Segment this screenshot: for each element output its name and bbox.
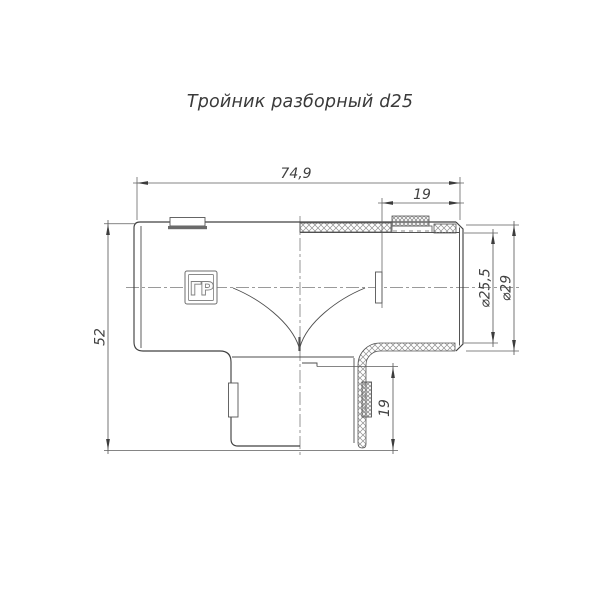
tee-body [134,222,463,446]
arrow-botsocket-bottom [391,439,395,450]
arrow-topsocket-right [449,201,460,205]
bottom-gasket-wrap [358,343,455,448]
clips [168,218,382,418]
dim-overall-width: 74,9 [280,166,311,182]
body-outline [134,222,456,446]
arrow-topsocket-left [382,201,393,205]
drawing-canvas: Тройник разборный d25 [0,0,600,600]
top-seal-understrip [392,226,432,233]
dim-overall-height: 52 [93,328,109,346]
dim-bottom-socket-depth: 19 [377,399,393,417]
arrow-od-top [512,225,516,236]
arrow-botsocket-top [391,367,395,378]
arrow-height-bottom [106,439,110,450]
top-seal-block [392,216,429,226]
top-seal-group [300,216,456,233]
extension-lines [104,177,519,451]
dim-outer-diameter: ⌀29 [499,275,515,301]
top-latch-tab [170,218,205,227]
drawing-title: Тройник разборный d25 [187,92,413,112]
arrow-width-left [137,181,148,185]
arrow-height-top [106,224,110,235]
socket-end-rib [376,272,383,303]
part-marking-text: ГР [189,278,214,300]
socket-end-step [302,363,317,367]
top-seal-end-ring [434,224,456,233]
dim-bore-diameter: ⌀25,5 [478,268,494,308]
internal-junction-curves [233,288,365,351]
branch-right-clip [362,382,372,417]
junction-curve-right [300,288,365,347]
top-latch-band [168,226,207,229]
arrow-bore-top [491,233,495,244]
branch-left-clip [229,383,239,417]
top-gasket-strip [300,223,391,232]
dim-top-socket-depth: 19 [413,187,431,203]
junction-curve-left [233,288,299,347]
gr-marking-badge: ГР [185,271,217,304]
arrow-od-bottom [512,340,516,351]
arrow-width-right [449,181,460,185]
arrow-bore-bottom [491,332,495,343]
drawing-sheet: Тройник разборный d25 [0,0,600,600]
